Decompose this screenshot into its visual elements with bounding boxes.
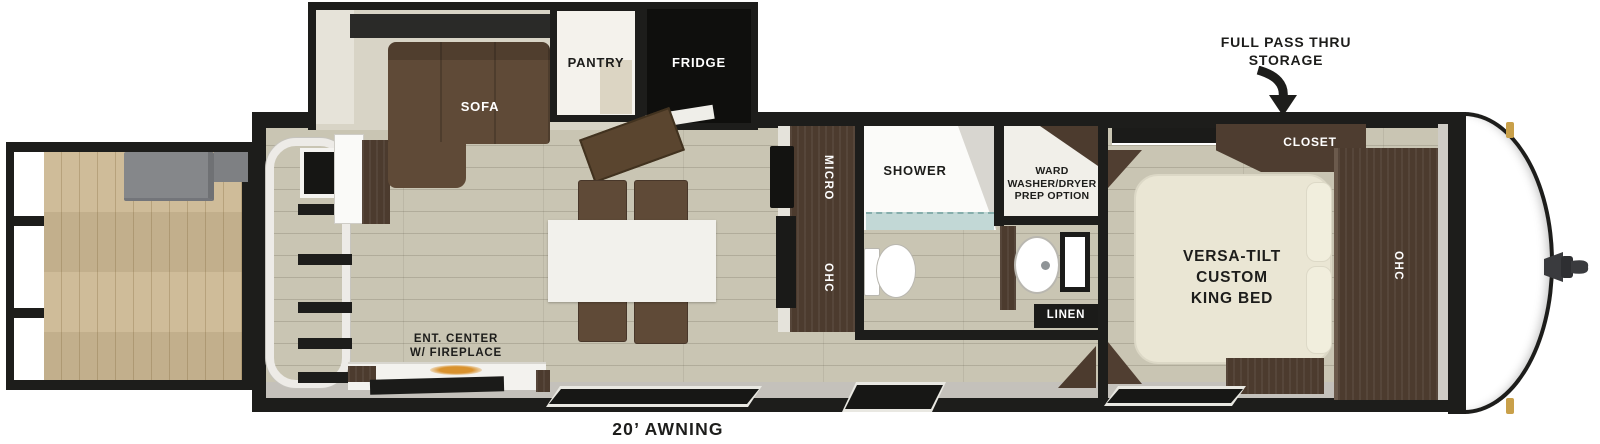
storage-callout-label: FULL PASS THRU STORAGE (1186, 32, 1386, 70)
sink-faucet (1041, 261, 1050, 270)
entry-step (298, 254, 352, 265)
sofa (388, 42, 550, 144)
linen-label: LINEN (1034, 304, 1098, 328)
king-bed-label: VERSA-TILT CUSTOM KING BED (1150, 243, 1314, 311)
entry-step (298, 372, 352, 383)
entry-step (298, 338, 352, 349)
ward-wall-bottom (1002, 216, 1104, 225)
rv-floorplan-diagram: FULL PASS THRU STORAGE SOFA PANTRY FRIDG… (0, 0, 1600, 444)
deck-storage-bench (124, 152, 214, 201)
ent-center-endcap (536, 370, 550, 392)
awning-label: 20’ AWNING (558, 416, 778, 442)
deck-rail (8, 308, 48, 318)
closet-label: CLOSET (1266, 134, 1354, 150)
deck-rail (8, 216, 48, 226)
sofa-chaise (388, 142, 466, 188)
slideout-wall-highlight (316, 10, 354, 124)
storage-callout-arrow-icon (1250, 66, 1306, 118)
sofa-label: SOFA (418, 98, 542, 116)
microwave-label: MICRO (813, 146, 841, 210)
bedroom-ohc-label: OHC (1384, 238, 1410, 294)
washer-dryer-prep-label: WARD WASHER/DRYER PREP OPTION (1000, 162, 1104, 206)
fridge-label: FRIDGE (642, 55, 756, 71)
bath-wall-bottom (855, 330, 1107, 340)
ent-center-label: ENT. CENTER W/ FIREPLACE (398, 331, 514, 361)
front-cap (1462, 112, 1554, 414)
dinette-table (548, 220, 716, 302)
kitchen-ohc-label: OHC (813, 252, 841, 304)
deck-side-table (214, 152, 248, 182)
oven (776, 216, 796, 308)
entry-step (298, 302, 352, 313)
bath-mirror (1060, 232, 1090, 292)
rear-cabinet-front (362, 140, 390, 224)
window (546, 386, 762, 407)
fireplace-glow (430, 365, 482, 375)
shower-label: SHOWER (868, 163, 962, 179)
pantry-label: PANTRY (550, 55, 642, 71)
cooktop (770, 146, 794, 208)
bathroom-sink (1014, 236, 1060, 294)
deck-gate-strip (14, 152, 46, 380)
shower-pan (866, 212, 994, 230)
rear-cabinet (334, 134, 364, 224)
window (1104, 386, 1246, 406)
bath-wall-left (855, 120, 864, 340)
hitch-coupler-icon (1544, 248, 1590, 286)
main-entry-door (842, 382, 946, 412)
marker-light (1506, 398, 1514, 414)
marker-light (1506, 122, 1514, 138)
wall-rear (252, 112, 266, 412)
rear-door-window (300, 148, 338, 198)
toilet-bowl (876, 244, 916, 298)
